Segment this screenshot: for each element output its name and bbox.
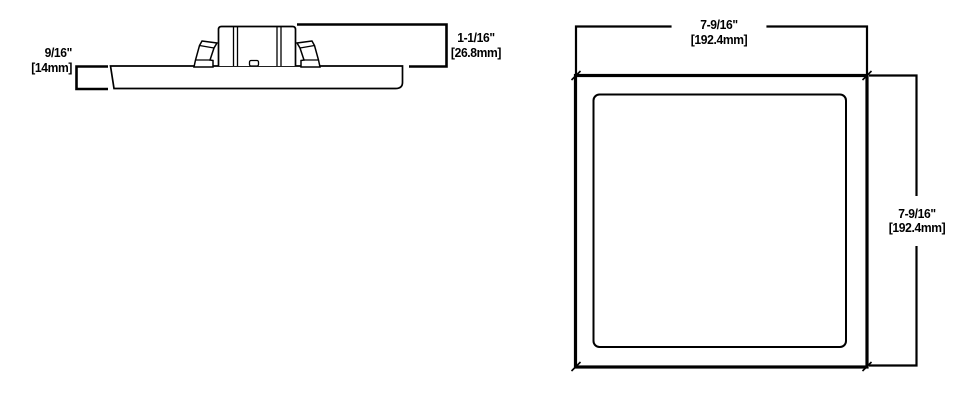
panel-profile [111,66,403,89]
front-width-inches: 7-9/16" [672,18,767,33]
side-thickness-inches: 9/16" [11,46,72,61]
junction-box-bottom-tab [250,61,259,67]
height-dimension-bracket [297,25,447,67]
thickness-dimension-bracket [77,67,109,90]
front-width-label: 7-9/16" [192.4mm] [672,18,767,47]
front-view [572,27,917,372]
dimension-drawing-canvas: 9/16" [14mm] 1-1/16" [26.8mm] 7-9/16" [1… [0,0,966,403]
inner-lens-square [594,95,847,348]
side-thickness-label: 9/16" [14mm] [11,46,72,75]
side-height-label: 1-1/16" [26.8mm] [449,31,503,60]
front-height-label: 7-9/16" [192.4mm] [887,196,947,246]
spring-clip-left [194,41,217,67]
dimension-drawing [0,0,966,403]
side-view [77,25,447,90]
front-height-mm: [192.4mm] [887,221,947,236]
front-width-mm: [192.4mm] [672,33,767,48]
spring-clip-right [297,41,320,67]
side-thickness-mm: [14mm] [11,61,72,76]
front-height-inches: 7-9/16" [887,207,947,222]
side-height-inches: 1-1/16" [449,31,503,46]
side-height-mm: [26.8mm] [449,46,503,61]
